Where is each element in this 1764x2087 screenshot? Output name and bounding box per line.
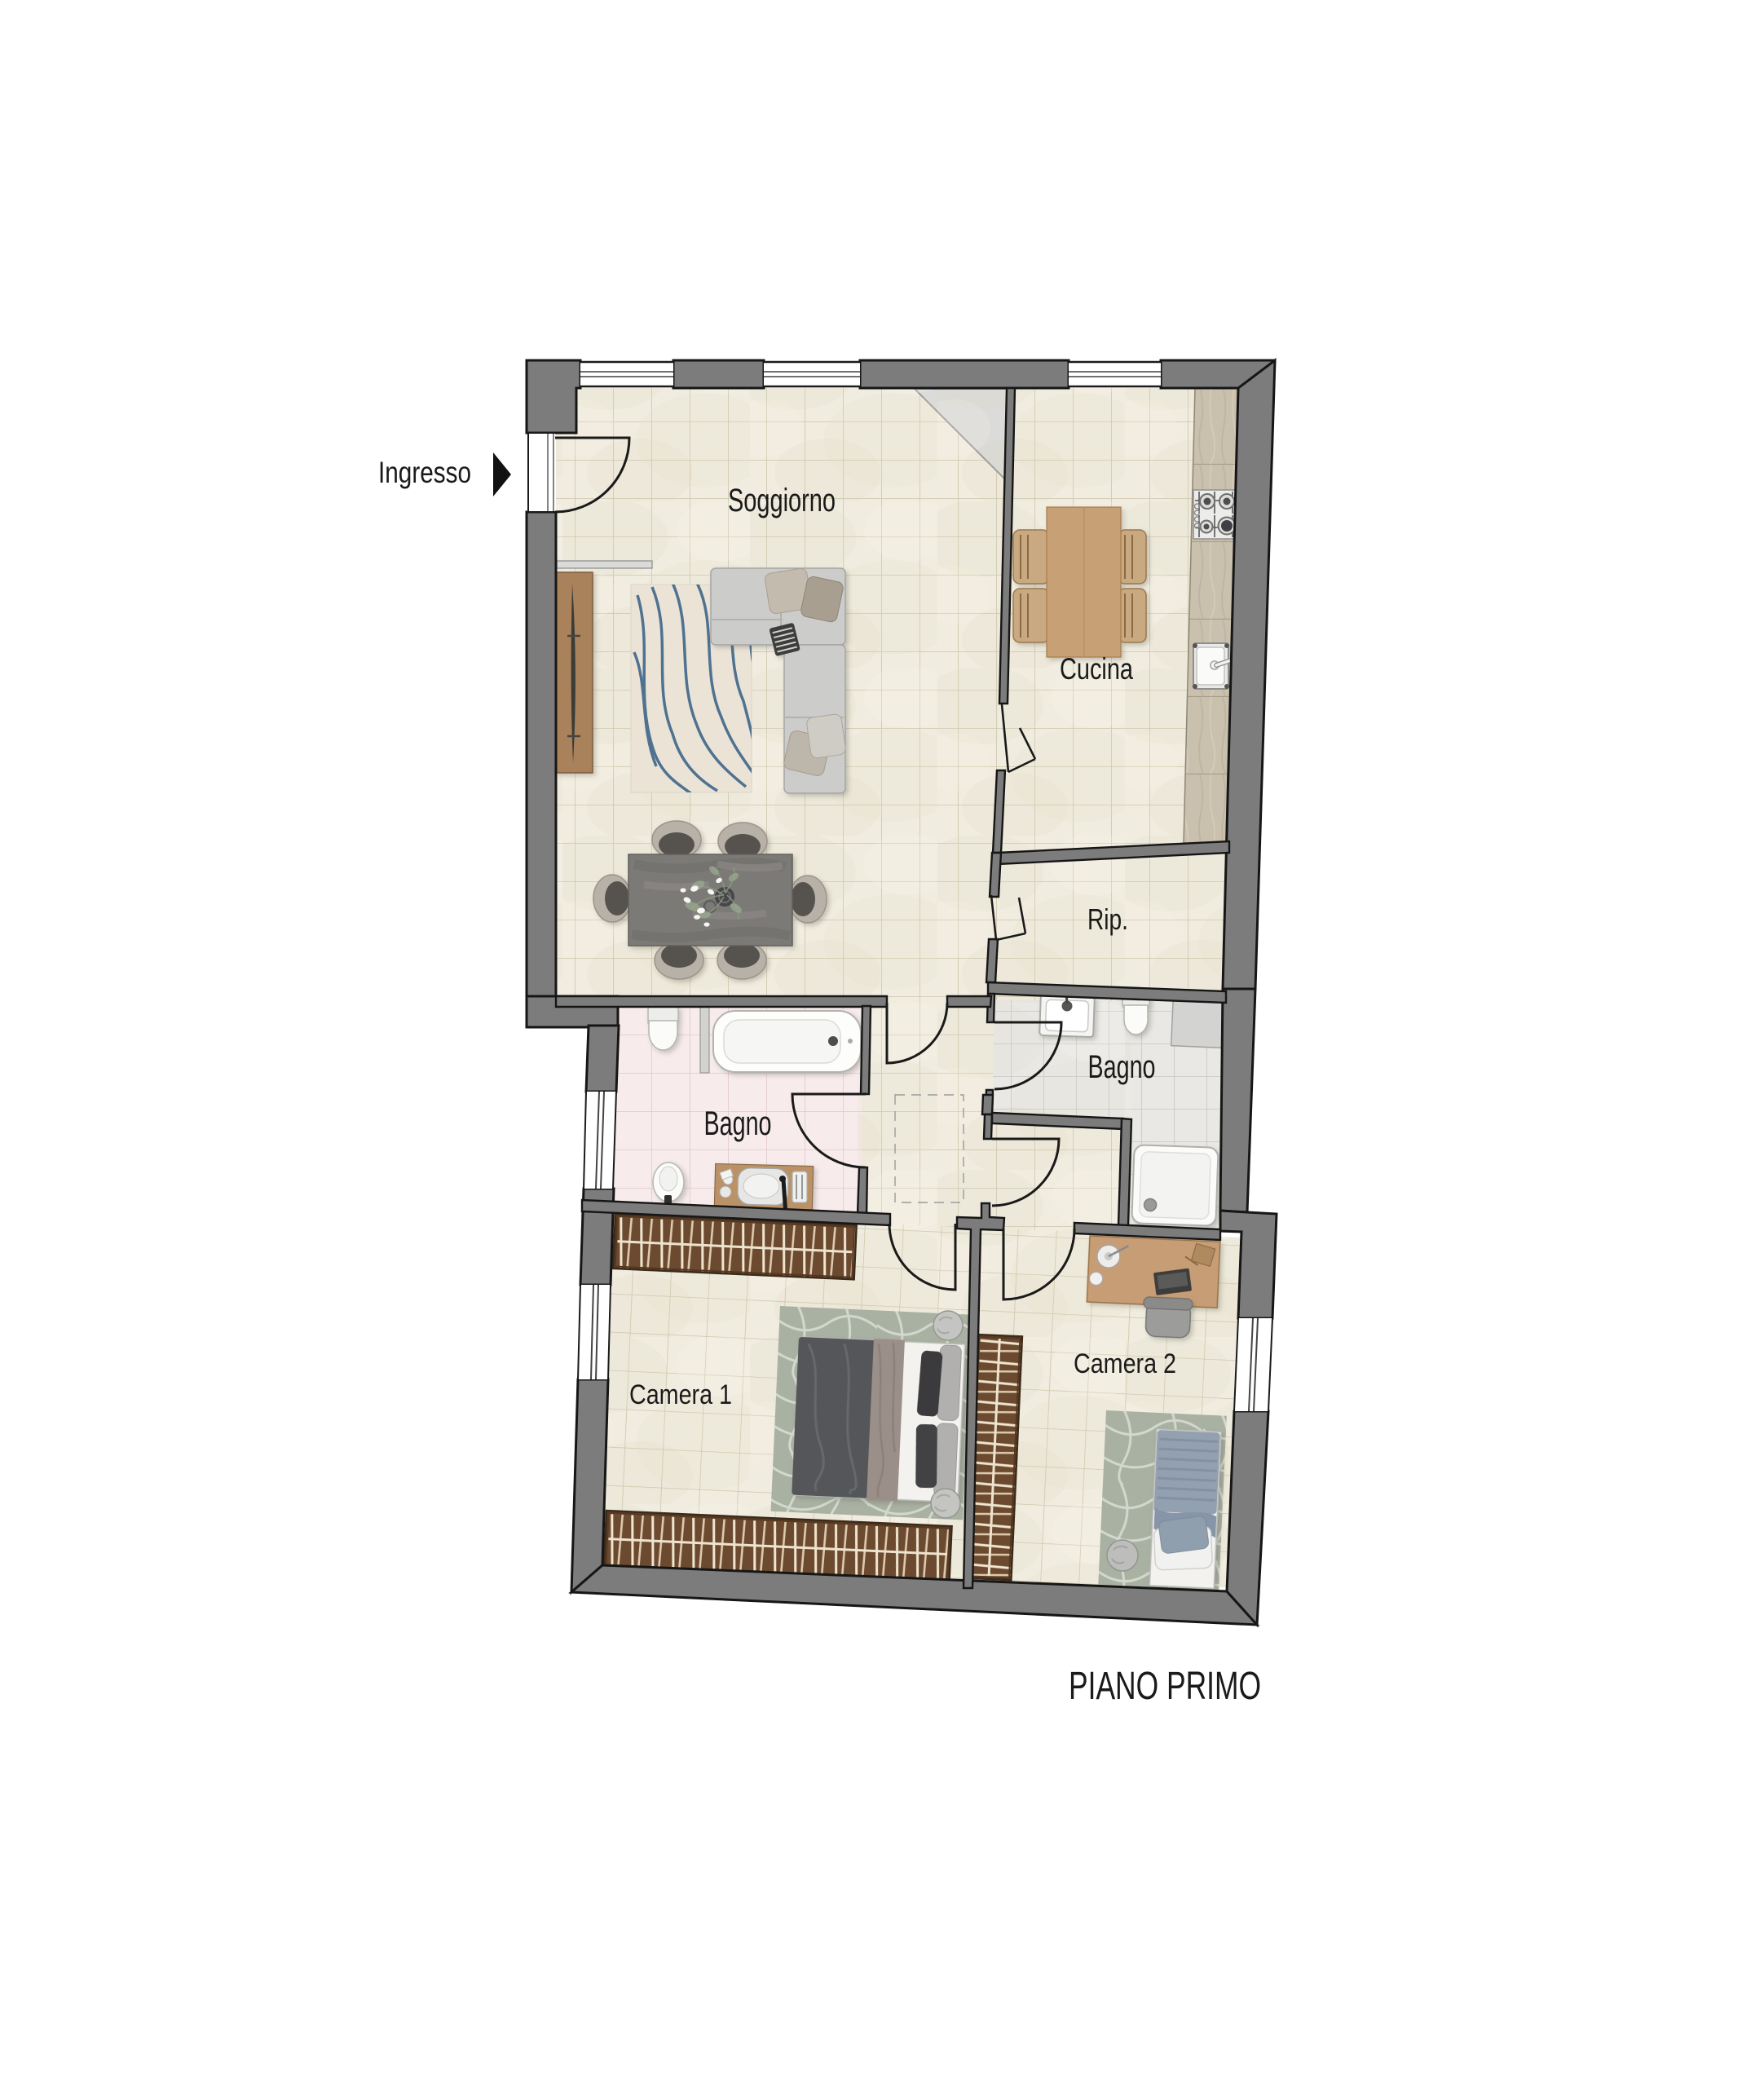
- svg-text:Cucina: Cucina: [1060, 652, 1133, 686]
- svg-text:Camera 1: Camera 1: [629, 1379, 732, 1410]
- svg-text:Bagno: Bagno: [704, 1104, 772, 1142]
- svg-text:PIANO PRIMO: PIANO PRIMO: [1069, 1665, 1261, 1708]
- svg-text:Rip.: Rip.: [1087, 902, 1128, 936]
- svg-text:Bagno: Bagno: [1088, 1049, 1156, 1085]
- svg-text:Soggiorno: Soggiorno: [728, 483, 836, 518]
- svg-text:Ingresso: Ingresso: [378, 456, 471, 489]
- svg-text:Camera 2: Camera 2: [1074, 1348, 1176, 1379]
